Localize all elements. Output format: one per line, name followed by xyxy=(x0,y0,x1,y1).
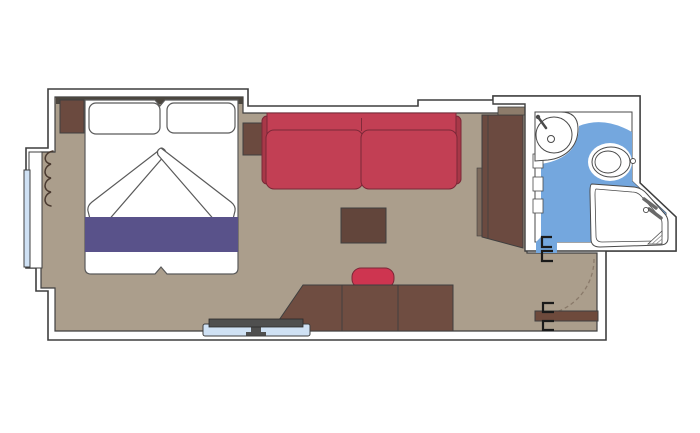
tv-unit xyxy=(203,319,310,336)
wardrobe xyxy=(477,107,527,248)
coffee-table xyxy=(341,208,386,243)
wardrobe-side xyxy=(477,168,482,236)
bath-shelf-3 xyxy=(533,199,543,213)
tv-screen xyxy=(209,319,303,327)
pillow-left xyxy=(89,103,160,134)
floor-plan-svg xyxy=(0,0,700,433)
bed-runner xyxy=(85,217,238,252)
bath-shelf-2 xyxy=(533,177,543,191)
floor-plan xyxy=(0,0,700,433)
pillow-right xyxy=(167,103,235,133)
wardrobe-top xyxy=(498,107,527,115)
nightstand-left xyxy=(60,100,84,133)
window-frame xyxy=(29,152,42,268)
tv-base xyxy=(246,332,266,336)
sofa xyxy=(262,113,461,189)
window-glass xyxy=(24,170,30,267)
basin-faucet-knob xyxy=(536,115,540,119)
shower-knob xyxy=(643,207,648,212)
double-bed xyxy=(85,100,238,274)
basin-drain xyxy=(548,136,555,143)
sofa-cushion-left xyxy=(266,130,363,189)
toilet-flush-button xyxy=(631,159,636,164)
sofa-cushion-right xyxy=(361,130,457,189)
